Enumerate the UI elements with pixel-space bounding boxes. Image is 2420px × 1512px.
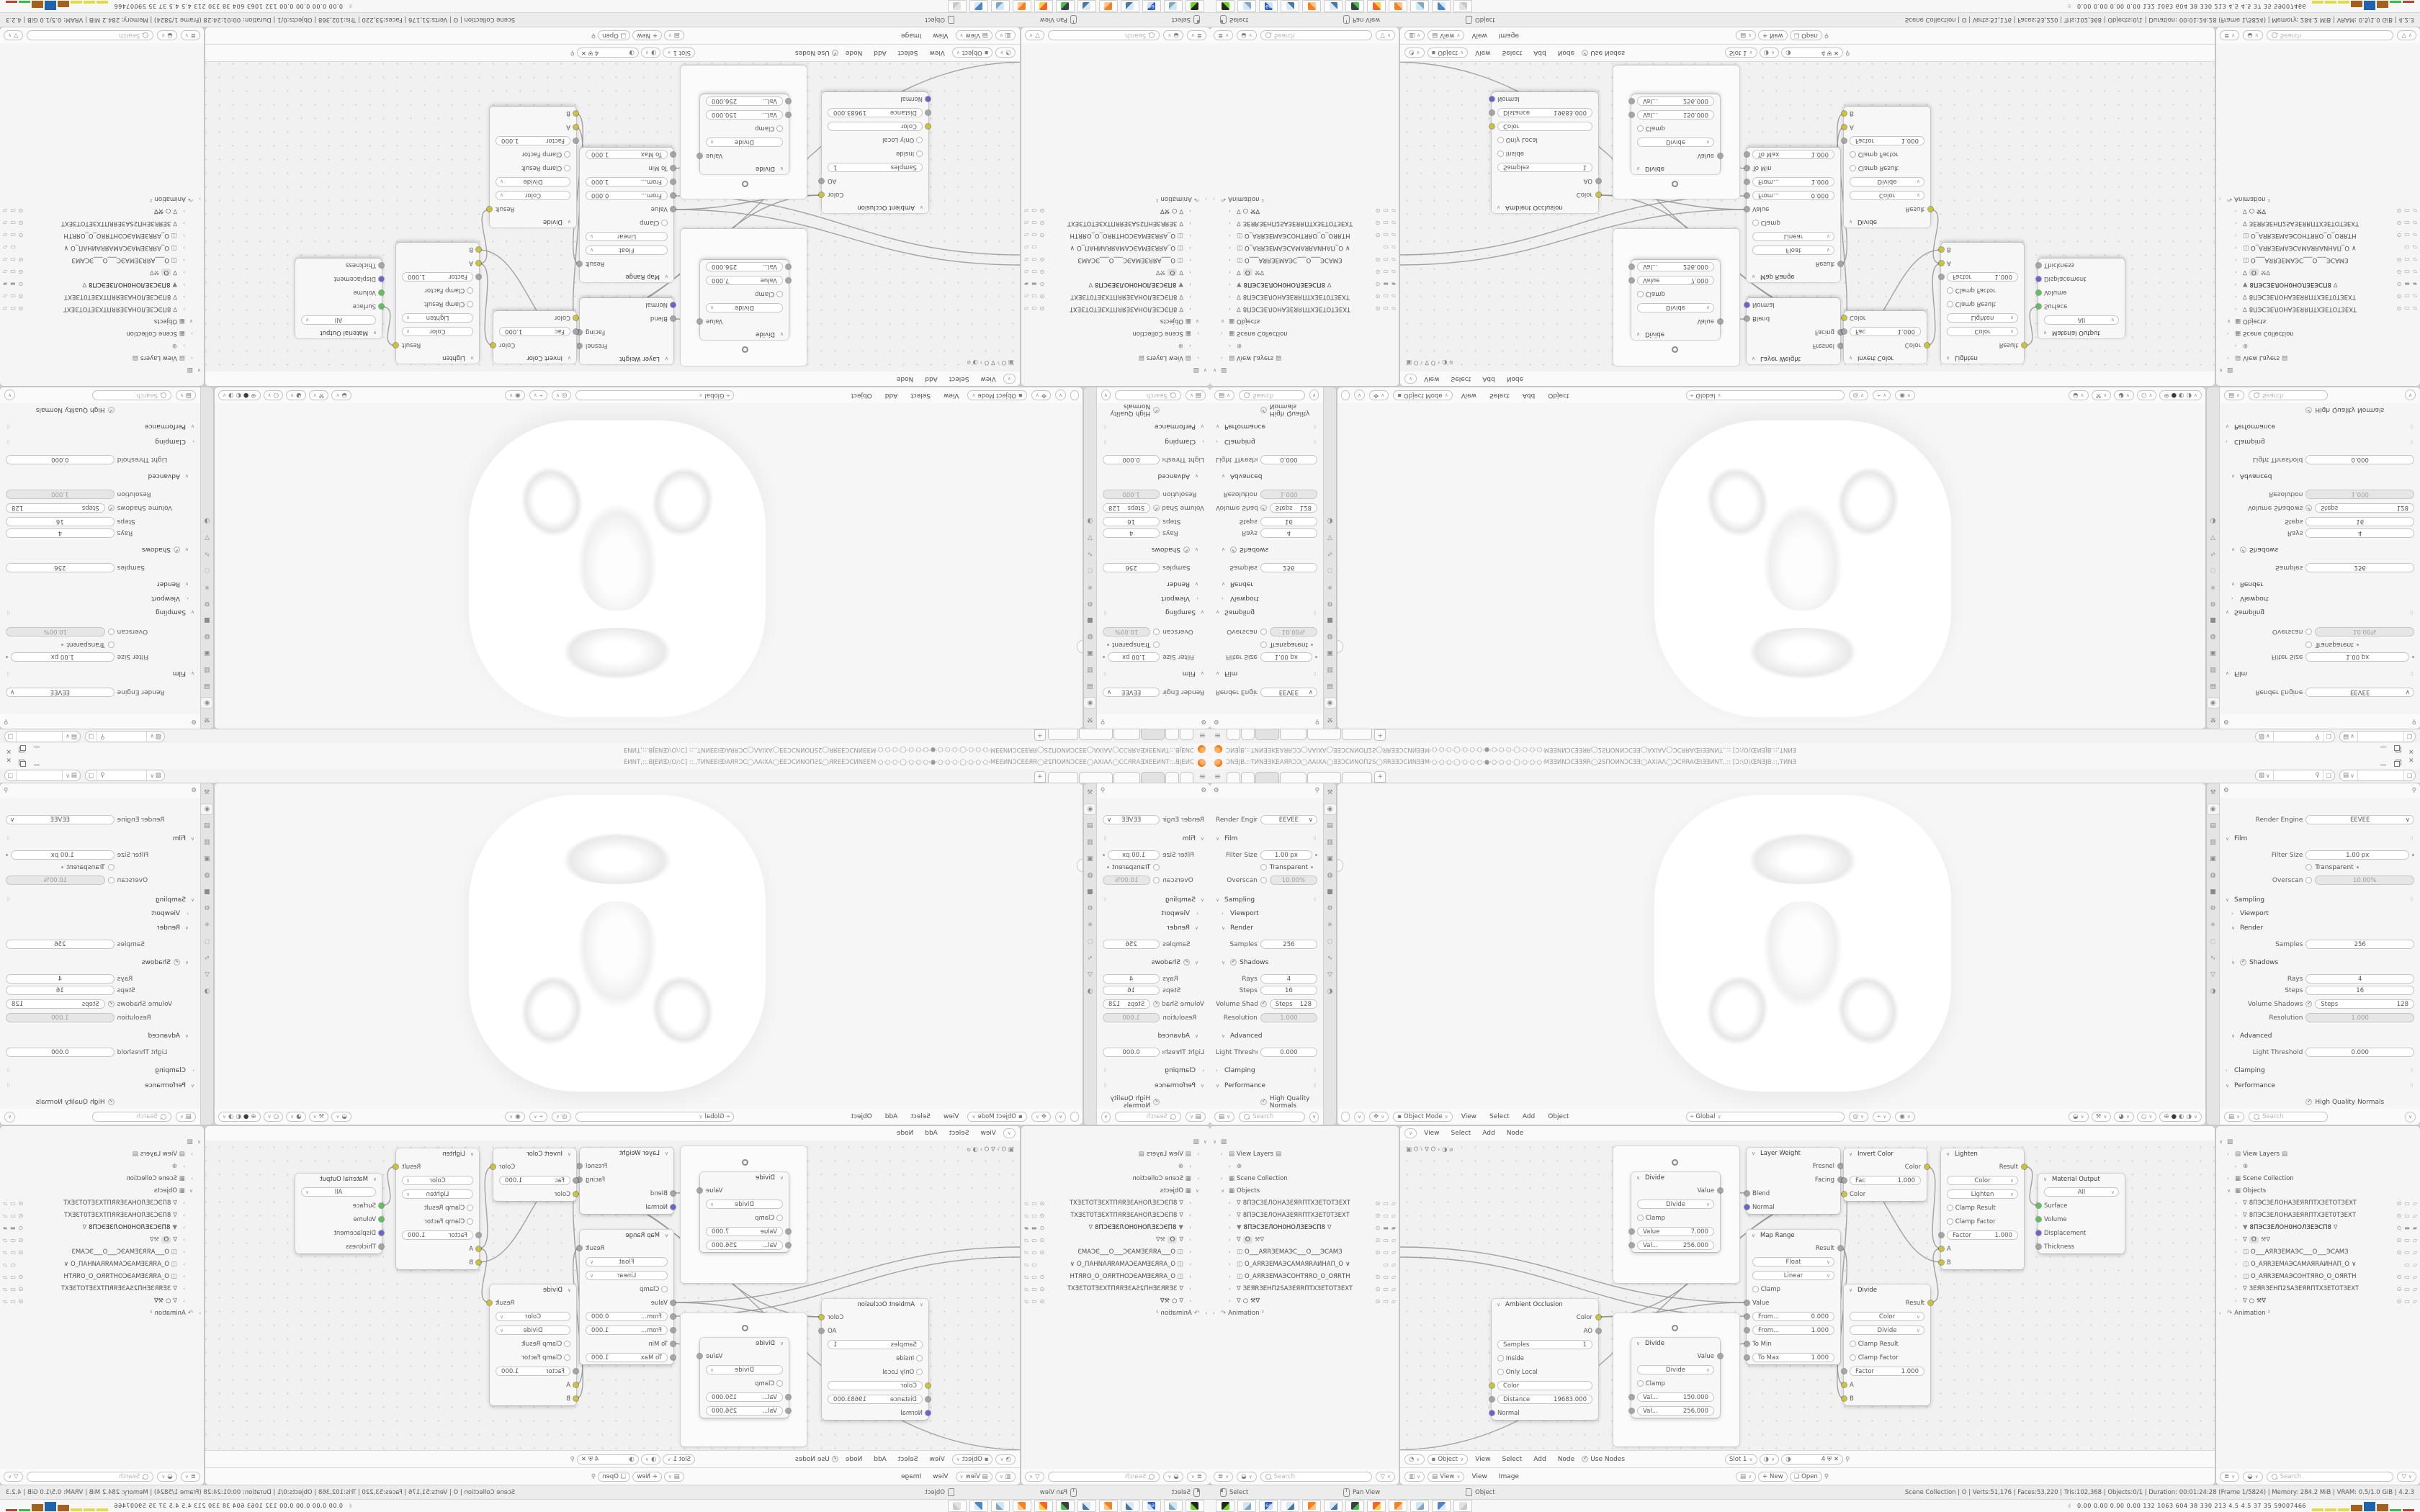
- toggle-icon[interactable]: ▭: [10, 257, 16, 264]
- material-datablock[interactable]: ◑4 ⛨ ✕: [577, 48, 639, 58]
- snap-target-button[interactable]: ◎∨: [552, 1112, 572, 1122]
- outliner-row-12[interactable]: ›∇ЗЕЯRЗЕНП2SАЗЕЯRПТХЗЕТОТЗЕХТ⊙▭▱: [1021, 1283, 1210, 1295]
- render-engine-select[interactable]: EEVEE∨: [2305, 688, 2414, 697]
- scene-name-field[interactable]: ⚲: [97, 732, 147, 742]
- node-dropdown[interactable]: Color∨: [1947, 1176, 2018, 1185]
- outliner-display-button[interactable]: ◒∨: [2243, 30, 2263, 40]
- properties-tab-4-icon[interactable]: ▣: [1085, 854, 1096, 864]
- node-checkbox[interactable]: [1850, 1354, 1856, 1361]
- pin-icon[interactable]: ⚲: [591, 32, 596, 40]
- prop-field[interactable]: 256: [1260, 563, 1317, 572]
- toggle-icon[interactable]: ▭: [1383, 269, 1389, 276]
- taskbar-button-notepad[interactable]: [1237, 1500, 1256, 1512]
- workspace-tab-4[interactable]: [1307, 772, 1341, 783]
- outliner-row-9[interactable]: ›◫О___АЯRЗЕМАЭС___О___ЭСАМЗ⊙▭▱: [0, 254, 204, 266]
- scene-selector-icon[interactable]: ▧∨: [147, 732, 164, 742]
- visibility-toggles[interactable]: ⊙▭▱: [2397, 220, 2417, 227]
- viewport-overlay-button-3[interactable]: ○∨: [264, 1112, 284, 1122]
- prop-field[interactable]: 16: [2305, 517, 2414, 526]
- taskbar-button-ghost-disabled[interactable]: [948, 1500, 967, 1512]
- pin-icon[interactable]: ⚲: [2316, 733, 2320, 740]
- outliner-row-0[interactable]: ∨▧: [1210, 364, 1399, 376]
- toggle-icon[interactable]: ▱: [3, 1274, 7, 1280]
- new-image-button[interactable]: + New: [632, 1472, 661, 1482]
- shading-1-icon[interactable]: ●: [2172, 1113, 2177, 1120]
- menu-hamburger-icon[interactable]: ≡: [1214, 731, 1221, 740]
- node-dropdown[interactable]: Divide∨: [706, 1200, 783, 1209]
- viewlayer-selector-icon[interactable]: ▤∨: [63, 732, 80, 742]
- viewport-overlay-button-0[interactable]: ◒∨: [2069, 390, 2089, 400]
- properties-tab-2-icon[interactable]: ▤: [1085, 681, 1096, 691]
- socket-input-to min[interactable]: [1744, 1341, 1749, 1346]
- toggle-icon[interactable]: ▱: [1024, 233, 1028, 239]
- socket-output-color[interactable]: [820, 1315, 825, 1320]
- node-dropdown[interactable]: Divide∨: [496, 177, 570, 186]
- outliner-row-7[interactable]: ›▼8ПЭСЗЕЛОН0НОЛЗЕЭСП8∇⊙▬▰: [2216, 1222, 2420, 1233]
- shading-mode-group[interactable]: ⊕●◐◑∨: [2159, 1112, 2202, 1122]
- material-preview-button[interactable]: ◑∨: [641, 1454, 661, 1464]
- expander-icon[interactable]: ∨: [1213, 367, 1219, 373]
- socket-input-distance[interactable]: [1489, 1397, 1494, 1402]
- prop-field[interactable]: 4: [2305, 528, 2414, 538]
- expander-icon[interactable]: ∨: [187, 1188, 193, 1194]
- taskbar-button-blender[interactable]: [1099, 1500, 1118, 1512]
- toggle-icon[interactable]: ⊙: [1376, 233, 1381, 239]
- properties-tab-11-icon[interactable]: ▽: [1325, 532, 1336, 542]
- visibility-toggles[interactable]: ▭▱: [1024, 1261, 1037, 1268]
- socket-output-value[interactable]: [698, 1354, 703, 1359]
- visibility-toggles[interactable]: ▭▱: [2404, 245, 2417, 251]
- visibility-toggles[interactable]: ⊙▭▱: [2397, 1237, 2417, 1243]
- socket-input-b[interactable]: [1842, 1396, 1847, 1401]
- outliner-filter-button[interactable]: ▽∨: [1376, 30, 1395, 40]
- prop-field[interactable]: 10.00%: [1103, 876, 1150, 885]
- expander-icon[interactable]: ›: [1201, 196, 1207, 202]
- toggle-icon[interactable]: ▭: [10, 233, 16, 239]
- visibility-toggles[interactable]: ⊙▭▱: [2397, 294, 2417, 300]
- material-datablock[interactable]: ◑4 ⛨ ✕: [1781, 48, 1843, 58]
- socket-input-color[interactable]: [1842, 1192, 1847, 1197]
- scene-name-field[interactable]: ⚲: [97, 770, 147, 780]
- taskbar-button-blender[interactable]: [1302, 1500, 1321, 1512]
- taskbar-button-scroll[interactable]: [1432, 1500, 1451, 1512]
- node-dropdown[interactable]: Lighten∨: [402, 313, 473, 323]
- menu-image[interactable]: Image: [901, 32, 921, 40]
- node-map-range[interactable]: ∨Map RangeResultFloat∨Linear∨ ClampValue…: [580, 148, 673, 282]
- outliner-filter-mode-button[interactable]: ≣∨: [2220, 1472, 2239, 1482]
- node-ambient-occlusion[interactable]: ∨Ambient OcclusionColorAOSamples1 Inside…: [822, 1299, 928, 1420]
- socket-input-color[interactable]: [1489, 1383, 1494, 1388]
- properties-tab-6-icon[interactable]: ■: [1325, 887, 1336, 897]
- prop-field[interactable]: 16: [1260, 517, 1317, 526]
- collapse-icon[interactable]: ∨: [1636, 1175, 1642, 1181]
- collapse-icon[interactable]: ∨: [1752, 356, 1757, 361]
- prop-field[interactable]: 16: [1103, 517, 1160, 526]
- toggle-icon[interactable]: ▱: [1024, 1286, 1028, 1292]
- scene-copy-button[interactable]: ❏: [86, 732, 97, 742]
- properties-search-input[interactable]: Search: [1239, 1112, 1305, 1122]
- toggle-icon[interactable]: ⊙: [19, 1200, 24, 1207]
- visibility-toggles[interactable]: ⊙▭▱: [1024, 1200, 1044, 1207]
- properties-display-button[interactable]: ▤∨: [1186, 1112, 1206, 1122]
- menu-add[interactable]: Add: [885, 392, 897, 399]
- collapse-icon[interactable]: ∨: [778, 331, 784, 337]
- toggle-icon[interactable]: ⊙: [1040, 220, 1045, 227]
- taskbar-button-blender[interactable]: [1099, 0, 1118, 12]
- shader-type-select[interactable]: ▪Object∨: [952, 1454, 993, 1464]
- prop-field[interactable]: 1.000: [1103, 490, 1160, 499]
- menu-add[interactable]: Add: [925, 1130, 937, 1137]
- node-field[interactable]: From...0.000: [586, 1312, 668, 1321]
- toggle-icon[interactable]: ▱: [1024, 269, 1028, 276]
- outliner-row-11[interactable]: ›◫О_АЯRЗЕМАЭСОНТЯRО_О_ОЯRТН⊙▭▱: [0, 1271, 204, 1282]
- close-button[interactable]: [4, 747, 12, 753]
- toggle-icon[interactable]: ⊙: [2397, 282, 2402, 288]
- visibility-toggles[interactable]: ⊙▭▱: [2397, 1249, 2417, 1256]
- node-dropdown[interactable]: Divide∨: [706, 138, 783, 147]
- animate-dot[interactable]: [6, 656, 8, 658]
- workspace-tab-3[interactable]: [1280, 772, 1307, 783]
- toggle-icon[interactable]: ▱: [1024, 306, 1028, 312]
- outliner-row-13[interactable]: ›∇○ ⚒∇⊙▭▱: [2216, 205, 2420, 217]
- toggle-icon[interactable]: ▱: [1024, 245, 1028, 251]
- toggle-icon[interactable]: ▭: [1031, 1298, 1037, 1305]
- properties-tab-0-icon[interactable]: ⚒: [2208, 788, 2219, 798]
- visibility-toggles[interactable]: ⊙▭▱: [2397, 257, 2417, 264]
- properties-tab-4-icon[interactable]: ▣: [2208, 648, 2219, 658]
- toggle-icon[interactable]: ⊙: [19, 1249, 24, 1256]
- properties-tab-10-icon[interactable]: ∿: [202, 549, 213, 559]
- prop-field[interactable]: 4: [6, 528, 115, 538]
- outliner-row-2[interactable]: ›⊕: [2216, 340, 2420, 351]
- pin-icon[interactable]: ⚲: [2316, 772, 2320, 779]
- toggle-icon[interactable]: ▭: [10, 220, 16, 227]
- expander-icon[interactable]: ∨: [1221, 318, 1227, 324]
- toggle-icon[interactable]: ▱: [1024, 1200, 1028, 1207]
- prop-field[interactable]: 1.00 px: [2305, 850, 2409, 860]
- use-nodes-checkbox[interactable]: [1582, 1456, 1588, 1462]
- properties-tab-11-icon[interactable]: ▽: [1085, 532, 1096, 542]
- outliner-row-10[interactable]: ›◫О_АЯRЗЕМАЭСАМАЯRАИНАП_О∨▭▱: [1210, 1259, 1399, 1270]
- collapse-icon[interactable]: ∨: [778, 1175, 784, 1181]
- expander-icon[interactable]: ∨: [1201, 367, 1207, 373]
- pin-icon[interactable]: ⚲: [100, 772, 104, 779]
- outliner-search-input[interactable]: Search: [1260, 1472, 1373, 1482]
- checkbox-transparent[interactable]: [108, 642, 115, 648]
- maximize-button[interactable]: [2394, 760, 2401, 766]
- toggle-icon[interactable]: ▭: [2404, 294, 2410, 300]
- socket-input-to max[interactable]: [1744, 152, 1749, 157]
- properties-tab-5-icon[interactable]: ◍: [2208, 870, 2219, 881]
- outliner-row-7[interactable]: ›▼8ПЭСЗЕЛОН0НОЛЗЕЭСП8∇⊙▬▰: [1210, 279, 1399, 290]
- pin-icon[interactable]: ⚲: [591, 1473, 596, 1480]
- socket-input-from...[interactable]: [1744, 193, 1749, 198]
- checkbox-overscan[interactable]: [1260, 877, 1267, 883]
- toggle-icon[interactable]: ▱: [1024, 257, 1028, 264]
- toggle-icon[interactable]: ▭: [1031, 306, 1037, 312]
- toggle-icon[interactable]: ⊙: [1040, 1212, 1045, 1219]
- socket-input-normal[interactable]: [1489, 96, 1494, 102]
- menu-node[interactable]: Node: [846, 50, 863, 57]
- toggle-icon[interactable]: ▭: [2404, 220, 2410, 227]
- close-button[interactable]: [4, 760, 12, 766]
- toggle-icon[interactable]: ▰: [1391, 282, 1396, 288]
- taskbar-button-ghost-disabled[interactable]: [1453, 1500, 1472, 1512]
- scene-copy-button[interactable]: ❏: [2323, 770, 2334, 780]
- properties-display-button[interactable]: ▤∨: [1214, 390, 1234, 400]
- socket-output-value[interactable]: [1718, 1354, 1723, 1359]
- outliner-row-12[interactable]: ›∇ЗЕЯRЗЕНП2SАЗЕЯRПТХЗЕТОТЗЕХТ⊙▭▱: [2216, 1283, 2420, 1295]
- outliner-row-1[interactable]: ›▤View Layers▤: [1210, 1148, 1399, 1160]
- menu-view[interactable]: View: [930, 50, 945, 57]
- header-oval-button[interactable]: [1341, 1112, 1350, 1122]
- viewport-canvas[interactable]: [215, 403, 1083, 729]
- properties-tab-2-icon[interactable]: ▤: [2208, 821, 2219, 831]
- node-dropdown[interactable]: Linear∨: [586, 1271, 668, 1280]
- taskbar-button-floppy-64[interactable]: 64: [1142, 0, 1161, 12]
- animate-dot[interactable]: [1311, 644, 1313, 646]
- outliner-row-6[interactable]: ›∇8ПЭСЗЕЛОНАЗЕЯRПТХЗЕТ0ТЗЕХТ⊙▭▱: [1021, 1210, 1210, 1221]
- checkbox-shadows[interactable]: [174, 546, 180, 553]
- toggle-icon[interactable]: ⊙: [2397, 1298, 2402, 1305]
- prop-field[interactable]: 0.000: [1103, 1048, 1160, 1057]
- outliner-filter-mode-button[interactable]: ≣∨: [181, 1472, 200, 1482]
- socket-input-displacement[interactable]: [2036, 276, 2041, 282]
- checkbox-overscan[interactable]: [2305, 877, 2312, 883]
- prop-field[interactable]: 16: [1103, 986, 1160, 995]
- checkbox-high-quality-normals[interactable]: [1153, 407, 1160, 413]
- expander-icon[interactable]: ∨: [1221, 1188, 1227, 1194]
- minimize-button[interactable]: [2380, 747, 2387, 753]
- collapse-icon[interactable]: ∨: [1497, 1302, 1502, 1308]
- node-dropdown[interactable]: Lighten∨: [402, 1189, 473, 1199]
- collapse-icon[interactable]: ∨: [1946, 355, 1952, 361]
- checkbox-high-quality-normals[interactable]: [108, 1099, 115, 1105]
- visibility-toggles[interactable]: ⊙▭▱: [1376, 233, 1396, 239]
- outliner-row-5[interactable]: ›∇8ПЭСЗЕЛОНАЗЕЯRПТХЗЕТОТЗЕХТ⊙▭▱: [1021, 1197, 1210, 1209]
- toggle-icon[interactable]: ▱: [1391, 1261, 1396, 1268]
- shading-0-icon[interactable]: ⊕: [251, 1113, 256, 1120]
- node-field[interactable]: To Max1.000: [586, 150, 668, 159]
- node-layer-weight[interactable]: ∨Layer WeightFresnelFacingBlendNormal: [580, 298, 673, 364]
- taskbar-button-terminal[interactable]: [1216, 0, 1234, 12]
- toggle-icon[interactable]: ▱: [3, 1212, 7, 1219]
- prop-field[interactable]: 1.00 px: [2305, 652, 2409, 662]
- node-checkbox[interactable]: [1637, 1380, 1644, 1387]
- toggle-icon[interactable]: ▱: [1391, 1200, 1396, 1207]
- toggle-icon[interactable]: ▱: [3, 1200, 7, 1207]
- prop-field[interactable]: 256: [1260, 940, 1317, 949]
- node-field[interactable]: Factor1.000: [402, 272, 473, 282]
- scene-copy-button[interactable]: ❏: [86, 770, 97, 780]
- node-dropdown[interactable]: All∨: [2044, 1187, 2119, 1197]
- pin-icon[interactable]: ⚲: [1315, 718, 1319, 725]
- visibility-toggles[interactable]: ⊙▬▰: [1376, 1225, 1396, 1231]
- toggle-icon[interactable]: ▭: [1031, 294, 1037, 300]
- properties-tab-9-icon[interactable]: ◌: [202, 937, 213, 947]
- visibility-toggles[interactable]: ⊙▭▱: [1376, 220, 1396, 227]
- node-checkbox[interactable]: [1947, 301, 1953, 307]
- properties-tab-9-icon[interactable]: ◌: [1325, 565, 1336, 575]
- node-field[interactable]: Factor1.000: [496, 1367, 570, 1376]
- socket-output-value[interactable]: [1718, 1188, 1723, 1193]
- toggle-icon[interactable]: ▭: [1383, 1286, 1389, 1292]
- pin-icon[interactable]: ⚲: [1845, 1456, 1850, 1463]
- properties-tab-7-icon[interactable]: ⚙: [1325, 904, 1336, 914]
- node-checkbox[interactable]: [1637, 291, 1644, 297]
- socket-input-factor[interactable]: [1939, 274, 1944, 279]
- outliner-row-13[interactable]: ›∇○ ⚒∇⊙▭▱: [1021, 205, 1210, 217]
- prop-field[interactable]: Steps128: [1103, 503, 1150, 513]
- menu-view[interactable]: View: [1471, 1473, 1487, 1480]
- properties-display-button[interactable]: ▤∨: [1186, 390, 1206, 400]
- properties-tab-7-icon[interactable]: ⚙: [202, 904, 213, 914]
- socket-input-from...[interactable]: [1744, 1314, 1749, 1319]
- taskbar-button-calculator[interactable]: [1281, 1500, 1299, 1512]
- workspace-tab-2[interactable]: [1255, 772, 1279, 783]
- expander-icon[interactable]: ∨: [2219, 1139, 2225, 1145]
- node-field[interactable]: Value7.000: [1637, 276, 1714, 285]
- viewport-overlay-button-1[interactable]: ⚒∨: [309, 1112, 329, 1122]
- taskbar-button-floppy-64[interactable]: 64: [1259, 1500, 1278, 1512]
- add-workspace-button[interactable]: +: [1374, 729, 1386, 741]
- node-checkbox[interactable]: [916, 150, 923, 157]
- prop-field[interactable]: 4: [1103, 974, 1160, 984]
- node-divide[interactable]: ∨DivideResultColor∨Divide∨ Clamp Result …: [1844, 107, 1930, 228]
- checkbox-volume shadows[interactable]: [1153, 505, 1160, 511]
- menu-add[interactable]: Add: [885, 1113, 897, 1120]
- node-divide[interactable]: ∨DivideValueDivide∨ ClampVal...150.000Va…: [1631, 1338, 1720, 1418]
- shading-3-icon[interactable]: ◑: [2186, 1113, 2191, 1120]
- outliner-row-1[interactable]: ›▤View Layers▤: [1210, 352, 1399, 364]
- outliner-row-2[interactable]: ›⊕: [1210, 340, 1399, 351]
- shading-1-icon[interactable]: ●: [2172, 392, 2177, 399]
- scene-name-field[interactable]: ⚲: [2273, 732, 2323, 742]
- taskbar-button-ghost-disabled[interactable]: [1453, 0, 1472, 12]
- properties-display-button[interactable]: ▤∨: [176, 390, 196, 400]
- node-layer-weight[interactable]: ∨Layer WeightFresnelFacingBlendNormal: [1747, 1148, 1840, 1214]
- header-collapse-button[interactable]: ∨: [1354, 390, 1365, 401]
- outliner-row-10[interactable]: ›◫О_АЯRЗЕМАЭСАМАЯRАИНАП_О∨▭▱: [2216, 242, 2420, 253]
- toggle-icon[interactable]: ⊙: [2397, 1225, 2402, 1231]
- viewport-overlay-button-2[interactable]: ◕∨: [2114, 390, 2134, 400]
- node-divide[interactable]: ∨DivideValueDivide∨ ClampValue7.000Val..…: [700, 260, 789, 340]
- node-canvas[interactable]: ▣ O › ∇ O › ◑ ⌀∨DivideValueDivide∨ Clamp…: [1400, 62, 2215, 372]
- collapse-icon[interactable]: ∨: [565, 355, 571, 361]
- node-field[interactable]: Distance19683.000: [1497, 1395, 1592, 1404]
- outliner-filter-mode-button[interactable]: ≣∨: [1214, 30, 1233, 40]
- node-invert-color[interactable]: ∨Invert ColorColorFac1.000Color: [1844, 311, 1927, 364]
- visibility-toggles[interactable]: ⊙▭▱: [3, 257, 23, 264]
- menu-add[interactable]: Add: [1482, 375, 1494, 382]
- material-preview-button[interactable]: ◑∨: [1760, 48, 1780, 58]
- outliner-row-1[interactable]: ›▤View Layers▤: [1021, 1148, 1210, 1160]
- toggle-icon[interactable]: ▭: [2404, 257, 2410, 264]
- viewport-overlay-button-3[interactable]: ○∨: [264, 390, 284, 400]
- toggle-icon[interactable]: ▭: [10, 1212, 16, 1219]
- node-dropdown[interactable]: All∨: [301, 315, 376, 325]
- animate-dot[interactable]: [61, 866, 63, 868]
- node-field[interactable]: Val...256.000: [1637, 1406, 1714, 1416]
- menu-select[interactable]: Select: [898, 1456, 918, 1463]
- toggle-icon[interactable]: ▬: [1383, 1225, 1389, 1231]
- socket-output-result[interactable]: [578, 1246, 583, 1251]
- toggle-icon[interactable]: ▱: [1391, 1274, 1396, 1280]
- expander-icon[interactable]: ›: [195, 196, 201, 202]
- node-checkbox[interactable]: [776, 1215, 783, 1221]
- node-field[interactable]: Distance19683.000: [828, 1395, 923, 1404]
- collapse-icon[interactable]: ∨: [565, 1287, 571, 1293]
- node-checkbox[interactable]: [564, 1354, 570, 1361]
- node-field[interactable]: Distance19683.000: [1497, 108, 1592, 117]
- toggle-icon[interactable]: ▰: [3, 282, 7, 288]
- node-invert-color[interactable]: ∨Invert ColorColorFac1.000Color: [1844, 1148, 1927, 1201]
- menu-node[interactable]: Node: [1507, 375, 1524, 382]
- taskbar-button-notepad[interactable]: [1164, 1500, 1183, 1512]
- visibility-toggles[interactable]: ⊙▭▱: [1024, 306, 1044, 312]
- toggle-icon[interactable]: ▭: [1383, 1261, 1389, 1268]
- node-dropdown[interactable]: Float∨: [586, 246, 668, 255]
- menu-node[interactable]: Node: [897, 1130, 914, 1137]
- properties-tab-4-icon[interactable]: ▣: [2208, 854, 2219, 864]
- node-field[interactable]: Color: [1497, 122, 1592, 131]
- node-checkbox[interactable]: [1637, 125, 1644, 132]
- prop-field[interactable]: 1.00 px: [1108, 652, 1160, 662]
- prop-field[interactable]: 256: [2305, 563, 2414, 572]
- node-checkbox[interactable]: [467, 301, 473, 307]
- expander-icon[interactable]: ›: [2219, 196, 2225, 202]
- viewport-overlay-button-3[interactable]: ○∨: [2137, 1112, 2157, 1122]
- node-checkbox[interactable]: [916, 1355, 923, 1362]
- visibility-toggles[interactable]: ⊙▭▱: [2397, 306, 2417, 312]
- viewport-overlay-button-2[interactable]: ◕∨: [286, 1112, 306, 1122]
- reroute-node-0[interactable]: [1672, 346, 1678, 353]
- snap-toggle-button[interactable]: ⌁∨: [529, 390, 547, 400]
- node-layer-weight[interactable]: ∨Layer WeightFresnelFacingBlendNormal: [1747, 298, 1840, 364]
- workspace-tab-0[interactable]: [1180, 772, 1193, 783]
- socket-output-result[interactable]: [1838, 1246, 1843, 1251]
- viewlayer-copy-button[interactable]: ❏: [2403, 770, 2415, 780]
- menu-view[interactable]: View: [981, 375, 996, 382]
- pin-icon[interactable]: ⚲: [1845, 50, 1850, 57]
- properties-tab-12-icon[interactable]: ◑: [202, 516, 213, 526]
- toggle-icon[interactable]: ⊙: [1040, 233, 1045, 239]
- visibility-toggles[interactable]: ⊙▭▱: [1024, 1298, 1044, 1305]
- toggle-icon[interactable]: ▭: [1031, 233, 1037, 239]
- outliner-filter-button[interactable]: ▽∨: [1025, 30, 1044, 40]
- visibility-toggles[interactable]: ⊙▭▱: [1024, 220, 1044, 227]
- visibility-toggles[interactable]: ⊙▭▱: [3, 1200, 23, 1207]
- material-slot-select[interactable]: Slot 1∨: [1725, 48, 1757, 58]
- toolbar-toggle-tab[interactable]: [1337, 640, 1343, 653]
- menu-select[interactable]: Select: [898, 50, 918, 57]
- collapse-button[interactable]: ∨: [1309, 390, 1319, 401]
- prop-field[interactable]: 4: [1260, 974, 1317, 984]
- shading-0-icon[interactable]: ⊕: [251, 392, 256, 399]
- properties-tab-8-icon[interactable]: ✳: [1085, 920, 1096, 930]
- node-dropdown[interactable]: Divide∨: [706, 303, 783, 312]
- expander-icon[interactable]: ∨: [2227, 1188, 2233, 1194]
- animate-dot[interactable]: [2412, 656, 2414, 658]
- properties-tab-2-icon[interactable]: ▤: [1325, 821, 1336, 831]
- socket-input-value[interactable]: [1629, 1229, 1634, 1234]
- snap-target-button[interactable]: ◎∨: [1849, 1112, 1869, 1122]
- image-view-select[interactable]: ▤View∨: [1428, 31, 1464, 41]
- menu-node[interactable]: Node: [846, 1456, 863, 1463]
- visibility-toggles[interactable]: ⊙▭▱: [1376, 1249, 1396, 1256]
- toggle-icon[interactable]: ▱: [1391, 1298, 1396, 1305]
- toggle-icon[interactable]: ⊙: [19, 1212, 24, 1219]
